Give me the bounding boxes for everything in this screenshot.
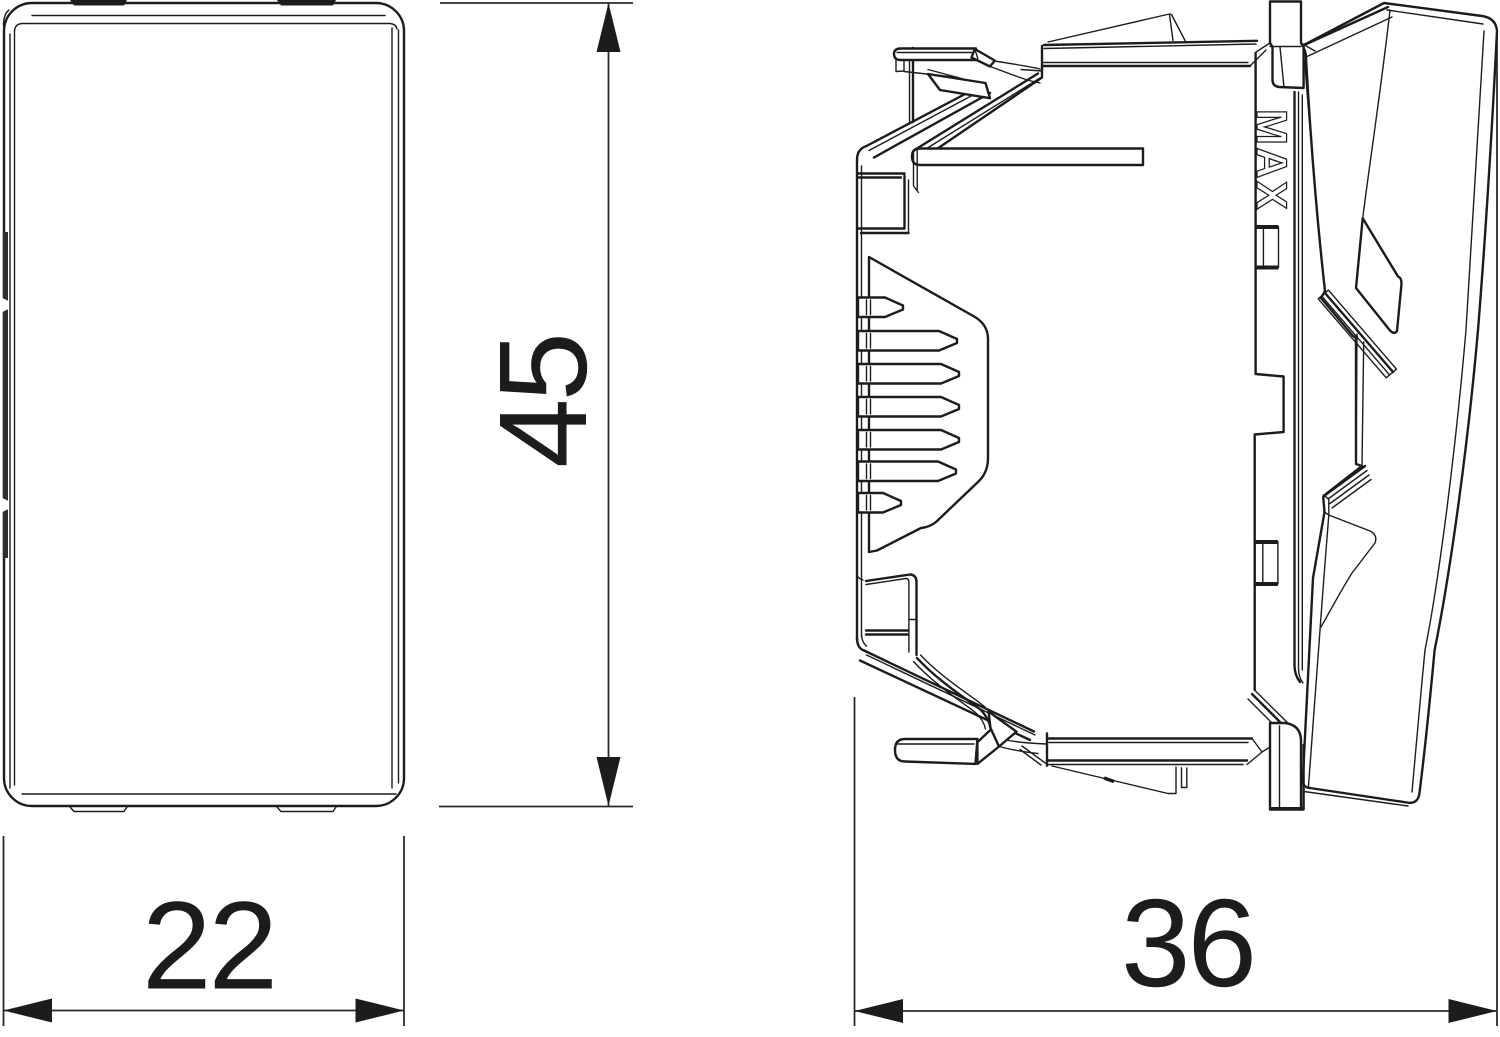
svg-text:22: 22 (142, 877, 275, 1016)
svg-text:45: 45 (474, 335, 613, 468)
svg-text:MAX: MAX (1247, 109, 1295, 212)
svg-text:36: 36 (1121, 874, 1254, 1013)
